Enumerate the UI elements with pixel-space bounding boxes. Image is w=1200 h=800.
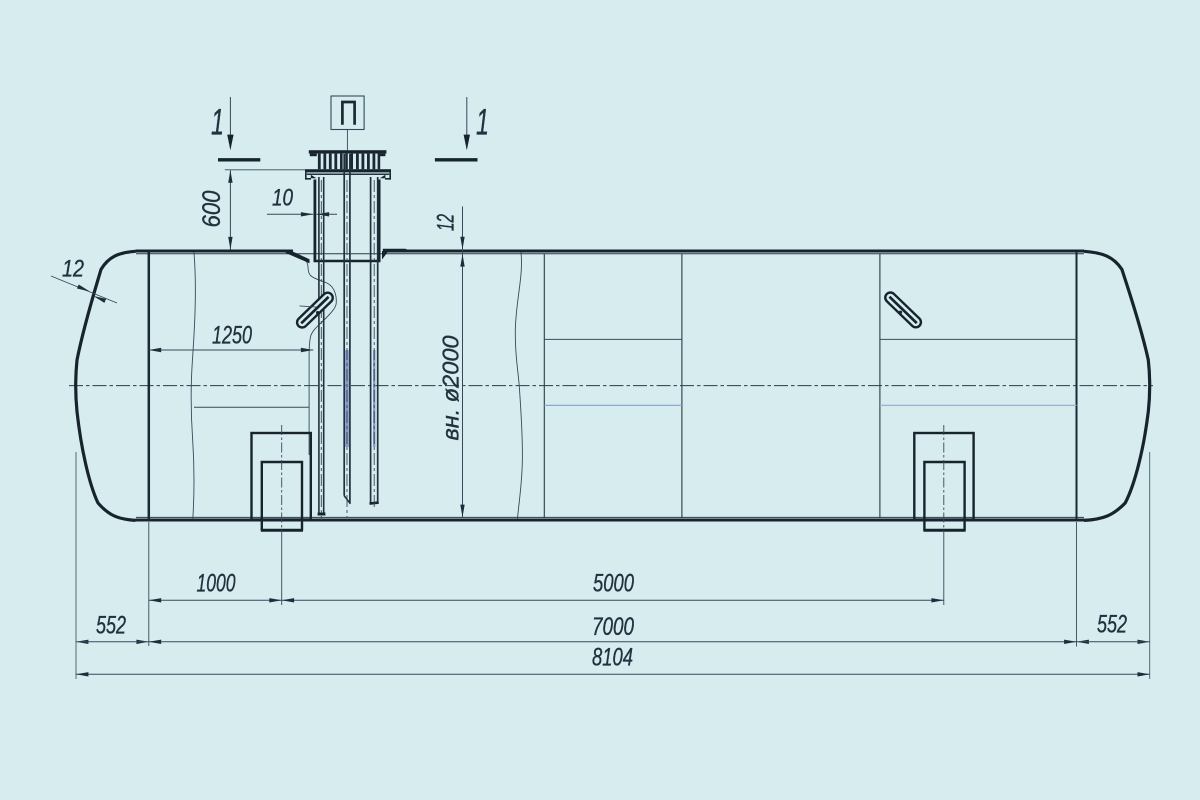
svg-text:1: 1 bbox=[211, 102, 224, 143]
svg-text:10: 10 bbox=[272, 185, 294, 212]
svg-text:12: 12 bbox=[62, 256, 84, 283]
svg-text:вн. ø2000: вн. ø2000 bbox=[438, 336, 464, 441]
svg-text:552: 552 bbox=[1097, 611, 1127, 639]
svg-text:552: 552 bbox=[96, 612, 126, 640]
svg-text:1: 1 bbox=[476, 102, 489, 143]
svg-text:7000: 7000 bbox=[592, 613, 634, 641]
svg-text:12: 12 bbox=[433, 214, 460, 231]
svg-text:1000: 1000 bbox=[197, 570, 236, 598]
svg-text:5000: 5000 bbox=[593, 570, 634, 598]
svg-text:8104: 8104 bbox=[592, 644, 633, 672]
svg-text:1250: 1250 bbox=[212, 322, 252, 350]
svg-text:600: 600 bbox=[198, 190, 226, 227]
